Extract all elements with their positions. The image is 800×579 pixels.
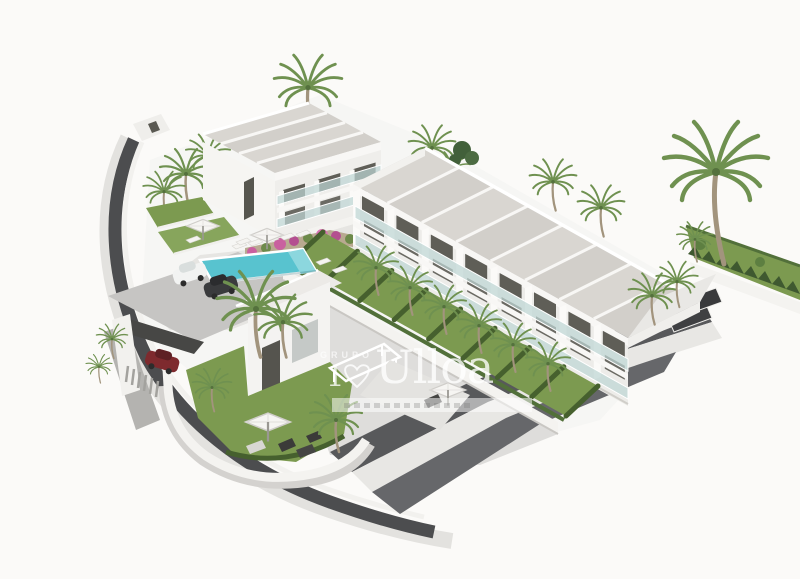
architectural-render: GRUPO 1 Ulloa <box>0 0 800 579</box>
render-scene <box>0 0 800 579</box>
gable-door <box>244 177 254 220</box>
entrance-structure <box>133 114 170 141</box>
